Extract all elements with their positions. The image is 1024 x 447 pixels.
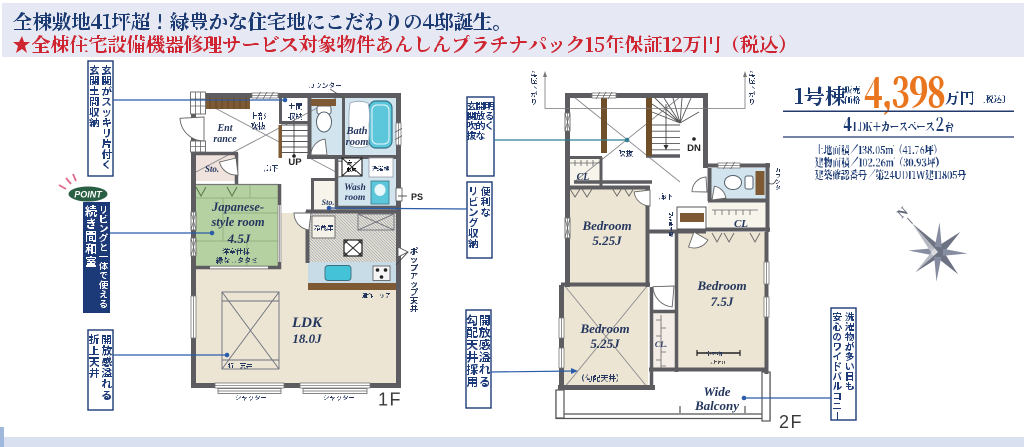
svg-text:Bath: Bath <box>345 126 367 137</box>
svg-text:Sto.: Sto. <box>322 198 335 207</box>
svg-text:Japanese-: Japanese- <box>211 200 264 214</box>
svg-text:Bedroom: Bedroom <box>696 278 746 293</box>
svg-text:5.25J: 5.25J <box>592 233 622 248</box>
svg-text:PS: PS <box>411 192 423 202</box>
svg-text:room: room <box>346 137 369 148</box>
svg-text:4.5J: 4.5J <box>227 231 251 246</box>
svg-text:CL: CL <box>734 218 748 230</box>
svg-text:Wash: Wash <box>344 183 365 193</box>
svg-text:Bedroom: Bedroom <box>579 321 629 336</box>
svg-text:rance: rance <box>213 134 237 145</box>
svg-text:CL: CL <box>577 172 590 183</box>
svg-text:room: room <box>345 193 366 203</box>
svg-text:Sto.: Sto. <box>205 164 219 174</box>
svg-text:CL.: CL. <box>655 340 667 349</box>
svg-text:Balcony: Balcony <box>694 398 739 413</box>
svg-text:2F: 2F <box>779 412 803 432</box>
svg-text:1F: 1F <box>378 390 402 410</box>
svg-text:Ent: Ent <box>216 123 233 134</box>
svg-text:style room: style room <box>210 215 264 229</box>
svg-text:POINT: POINT <box>74 190 103 200</box>
svg-text:LDK: LDK <box>291 315 323 331</box>
svg-text:7.5J: 7.5J <box>711 294 734 309</box>
svg-text:UP: UP <box>288 157 302 168</box>
svg-text:Bedroom: Bedroom <box>581 218 631 233</box>
svg-text:18.0J: 18.0J <box>292 331 322 346</box>
svg-text:Wide: Wide <box>704 384 731 399</box>
svg-text:5.25J: 5.25J <box>590 336 620 351</box>
svg-text:DN: DN <box>687 143 701 154</box>
